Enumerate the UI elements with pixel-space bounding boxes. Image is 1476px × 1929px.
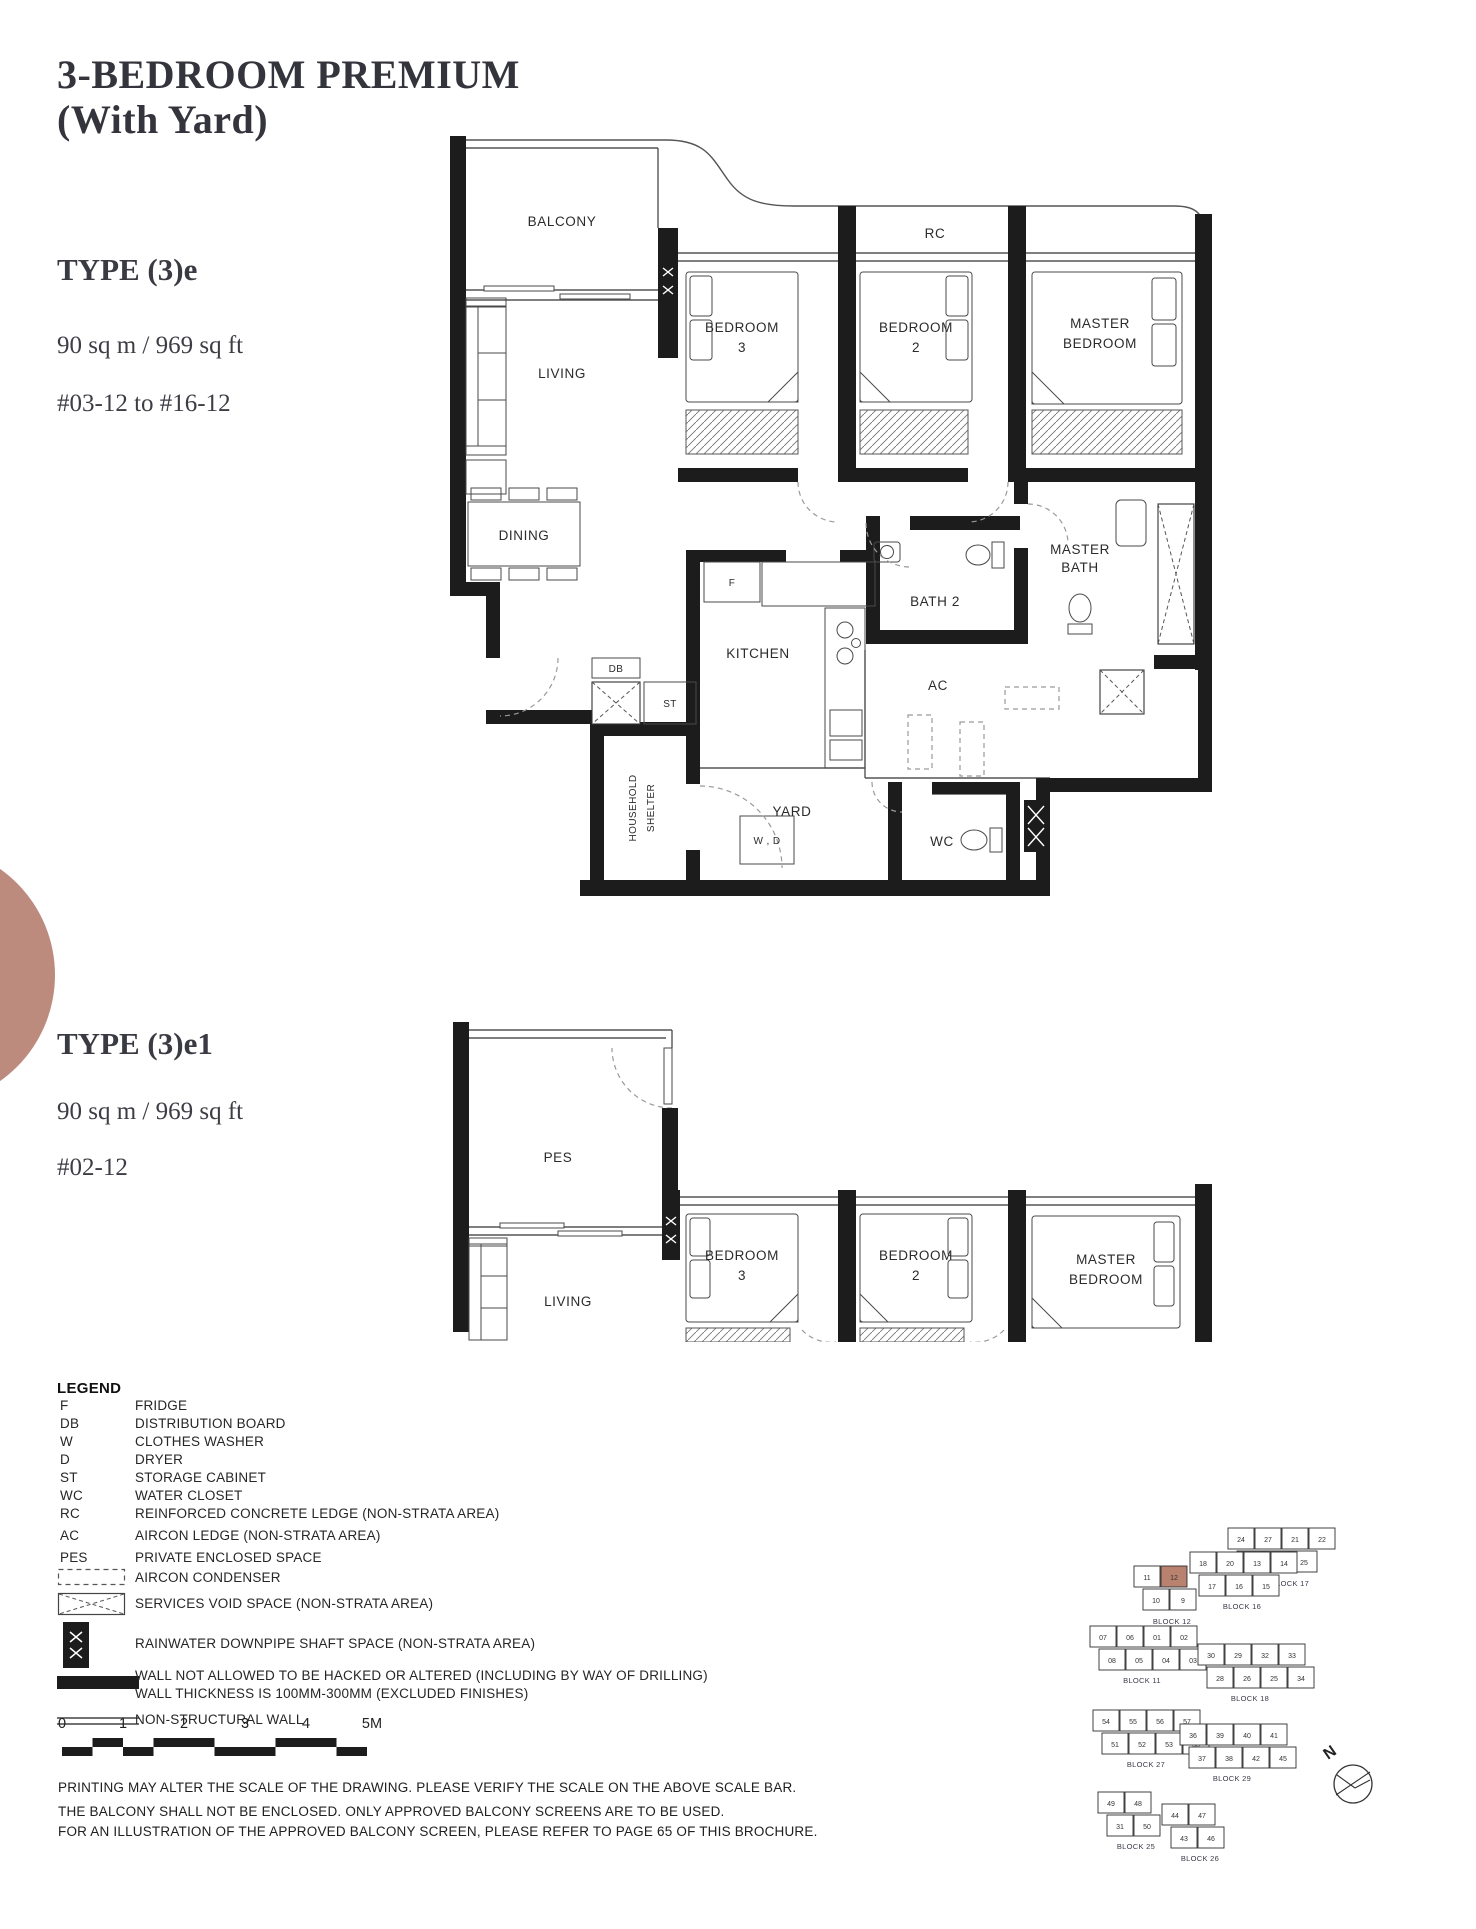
north-compass: N — [1321, 1743, 1372, 1803]
unit-b-area: 90 sq m / 969 sq ft — [57, 1098, 243, 1126]
room-label-household-line1: HOUSEHOLD — [628, 775, 639, 842]
structural-wall-icon — [57, 1676, 139, 1690]
unit-a-type-label: TYPE (3)e — [57, 252, 197, 288]
site-unit-number: 40 — [1243, 1733, 1251, 1740]
site-block-label: BLOCK 27 — [1127, 1760, 1165, 1769]
site-unit-number: 37 — [1198, 1756, 1206, 1763]
scale-bar: 0 1 2 3 4 5M — [50, 1712, 410, 1766]
site-unit-number: 06 — [1126, 1635, 1134, 1642]
site-block-label: BLOCK 11 — [1123, 1676, 1161, 1685]
site-unit-number: 41 — [1270, 1733, 1278, 1740]
room-label-bedroom3-line1: BEDROOM — [705, 320, 779, 335]
site-map-svg: N 24272122232625BLOCK 1718201314171615BL… — [1078, 1512, 1438, 1912]
site-unit-number: 12 — [1170, 1575, 1178, 1582]
room-label-master-b-line2: BEDROOM — [1069, 1272, 1143, 1287]
room-label-living: LIVING — [538, 366, 586, 381]
note-balcony-2: FOR AN ILLUSTRATION OF THE APPROVED BALC… — [58, 1824, 958, 1839]
room-label-master-b-line1: MASTER — [1076, 1252, 1136, 1267]
site-unit-number: 31 — [1116, 1824, 1124, 1831]
site-unit-number: 32 — [1261, 1653, 1269, 1660]
room-label-bedroom3-b-line2: 3 — [738, 1268, 746, 1283]
room-label-master-bath-line1: MASTER — [1050, 542, 1110, 557]
room-label-pes: PES — [544, 1150, 573, 1165]
site-unit-number: 36 — [1189, 1733, 1197, 1740]
rainwater-shaft-icons-b — [663, 1210, 679, 1252]
site-unit-number: 15 — [1262, 1584, 1270, 1591]
site-unit-number: 28 — [1216, 1676, 1224, 1683]
site-unit-number: 14 — [1280, 1561, 1288, 1568]
site-clusters: 24272122232625BLOCK 1718201314171615BLOC… — [1090, 1528, 1335, 1863]
site-unit-number: 01 — [1153, 1635, 1161, 1642]
site-unit-number: 27 — [1264, 1537, 1272, 1544]
aircon-condenser-icon — [57, 1568, 127, 1586]
site-unit-number: 18 — [1199, 1561, 1207, 1568]
site-unit-number: 25 — [1270, 1676, 1278, 1683]
room-label-balcony: BALCONY — [528, 214, 597, 229]
site-unit-number: 45 — [1279, 1756, 1287, 1763]
room-label-bedroom3-b-line1: BEDROOM — [705, 1248, 779, 1263]
site-unit-number: 08 — [1108, 1658, 1116, 1665]
site-unit-number: 38 — [1225, 1756, 1233, 1763]
site-unit-number: 53 — [1165, 1742, 1173, 1749]
site-unit-number: 44 — [1171, 1813, 1179, 1820]
site-unit-number: 07 — [1099, 1635, 1107, 1642]
site-unit-number: 47 — [1198, 1813, 1206, 1820]
site-unit-number: 21 — [1291, 1537, 1299, 1544]
room-label-master-line2: BEDROOM — [1063, 336, 1137, 351]
room-label-bedroom2-line1: BEDROOM — [879, 320, 953, 335]
room-label-bath2: BATH 2 — [910, 594, 960, 609]
site-unit-number: 29 — [1234, 1653, 1242, 1660]
scale-bar-blocks — [62, 1738, 367, 1756]
legend-title: LEGEND — [57, 1380, 121, 1397]
north-label: N — [1321, 1743, 1340, 1764]
unit-a-area: 90 sq m / 969 sq ft — [57, 332, 243, 360]
unit-a-levels: #03-12 to #16-12 — [57, 390, 231, 418]
scale-tick-4: 4 — [302, 1716, 310, 1732]
site-unit-number: 04 — [1162, 1658, 1170, 1665]
room-label-rc: RC — [925, 226, 946, 241]
note-scale: PRINTING MAY ALTER THE SCALE OF THE DRAW… — [58, 1780, 958, 1795]
room-label-yard: YARD — [773, 804, 812, 819]
note-balcony-1: THE BALCONY SHALL NOT BE ENCLOSED. ONLY … — [58, 1804, 958, 1819]
rainwater-shaft-icon — [63, 1622, 89, 1668]
scale-tick-0: 0 — [58, 1716, 66, 1732]
site-unit-number: 10 — [1152, 1598, 1160, 1605]
site-unit-number: 03 — [1189, 1658, 1197, 1665]
room-label-master-line1: MASTER — [1070, 316, 1130, 331]
structural-walls — [450, 136, 1212, 896]
unit-b-type-label: TYPE (3)e1 — [57, 1026, 213, 1062]
room-label-bedroom2-b-line2: 2 — [912, 1268, 920, 1283]
site-unit-number: 24 — [1237, 1537, 1245, 1544]
room-label-dining: DINING — [499, 528, 550, 543]
site-unit-number: 42 — [1252, 1756, 1260, 1763]
room-label-master-bath-line2: BATH — [1061, 560, 1098, 575]
thin-outline — [466, 140, 1204, 794]
site-unit-number: 22 — [1318, 1537, 1326, 1544]
scale-tick-2: 2 — [180, 1716, 188, 1732]
room-label-bedroom2-line2: 2 — [912, 340, 920, 355]
site-unit-number: 55 — [1129, 1719, 1137, 1726]
marker-st: ST — [663, 699, 677, 710]
room-label-bedroom3-line2: 3 — [738, 340, 746, 355]
site-unit-number: 17 — [1208, 1584, 1216, 1591]
site-unit-number: 25 — [1300, 1560, 1308, 1567]
scale-tick-5m: 5M — [362, 1716, 382, 1732]
site-block-label: BLOCK 18 — [1231, 1694, 1269, 1703]
site-block-label: BLOCK 26 — [1181, 1854, 1219, 1863]
room-label-kitchen: KITCHEN — [726, 646, 789, 661]
site-unit-number: 16 — [1235, 1584, 1243, 1591]
site-unit-number: 56 — [1156, 1719, 1164, 1726]
room-label-living-b: LIVING — [544, 1294, 592, 1309]
marker-fridge: F — [729, 578, 736, 589]
room-label-wc: WC — [930, 834, 954, 849]
room-label-household-line2: SHELTER — [646, 784, 657, 832]
site-unit-number: 51 — [1111, 1742, 1119, 1749]
floor-plan-type-3e1: PES LIVING BEDROOM 3 BEDROOM 2 MASTER BE… — [440, 1012, 1240, 1342]
site-unit-number: 11 — [1143, 1575, 1150, 1582]
voids-and-doors — [500, 482, 1194, 868]
site-unit-number: 43 — [1180, 1836, 1188, 1843]
site-unit-number: 26 — [1243, 1676, 1251, 1683]
site-unit-number: 05 — [1135, 1658, 1143, 1665]
room-label-ac: AC — [928, 678, 948, 693]
accent-circle — [0, 845, 55, 1105]
site-unit-number: 02 — [1180, 1635, 1188, 1642]
site-unit-number: 54 — [1102, 1719, 1110, 1726]
unit-b-levels: #02-12 — [57, 1154, 128, 1182]
marker-db: DB — [609, 664, 624, 675]
site-unit-number: 52 — [1138, 1742, 1146, 1749]
site-block-label: BLOCK 12 — [1153, 1617, 1191, 1626]
thin-outline-b — [469, 1030, 1195, 1236]
site-unit-number: 30 — [1207, 1653, 1215, 1660]
services-void-icon — [57, 1592, 127, 1616]
brochure-page: 3-BEDROOM PREMIUM (With Yard) TYPE (3)e … — [0, 0, 1476, 1929]
scale-tick-1: 1 — [119, 1716, 127, 1732]
site-unit-number: 13 — [1253, 1561, 1261, 1568]
site-unit-number: 9 — [1181, 1598, 1185, 1605]
room-label-bedroom2-b-line1: BEDROOM — [879, 1248, 953, 1263]
site-block-label: BLOCK 16 — [1223, 1602, 1261, 1611]
site-unit-number: 39 — [1216, 1733, 1224, 1740]
site-block-label: BLOCK 29 — [1213, 1774, 1251, 1783]
site-unit-number: 49 — [1107, 1801, 1115, 1808]
floor-plan-type-3e: BALCONY RC BEDROOM 3 BEDROOM 2 MASTER BE… — [440, 110, 1230, 910]
site-unit-number: 46 — [1207, 1836, 1215, 1843]
site-unit-number: 20 — [1226, 1561, 1234, 1568]
site-unit-number: 48 — [1134, 1801, 1142, 1808]
site-unit-number: 33 — [1288, 1653, 1296, 1660]
site-unit-number: 50 — [1143, 1824, 1151, 1831]
site-block-label: BLOCK 25 — [1117, 1842, 1155, 1851]
scale-tick-3: 3 — [241, 1716, 249, 1732]
site-unit-number: 34 — [1297, 1676, 1305, 1683]
marker-wd: W , D — [754, 836, 781, 847]
